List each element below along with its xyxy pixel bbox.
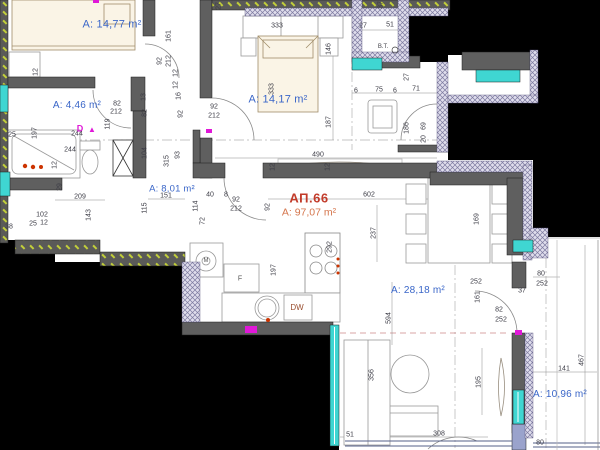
stove-icon [305,233,340,293]
window-icon [352,58,382,70]
dishwasher-icon [284,295,312,320]
bathtub-icon [8,130,80,178]
exterior-wall-left [0,0,8,243]
armchair-icon [368,100,397,133]
wardrobe-icon [243,16,343,38]
dining-table-icon [406,178,512,263]
vent-shaft-icon [113,140,133,176]
fridge-icon [224,264,259,292]
window-icon [476,70,520,82]
window-icon [0,85,8,112]
floor-plan: АП.66 А: 97,07 m² 1216192212121216921382… [0,0,600,450]
floor-plan-drawing [0,0,600,450]
round-table-icon [391,355,429,393]
window-icon [513,240,533,252]
kitchen-sink-icon [222,293,340,322]
window-icon [0,172,10,196]
